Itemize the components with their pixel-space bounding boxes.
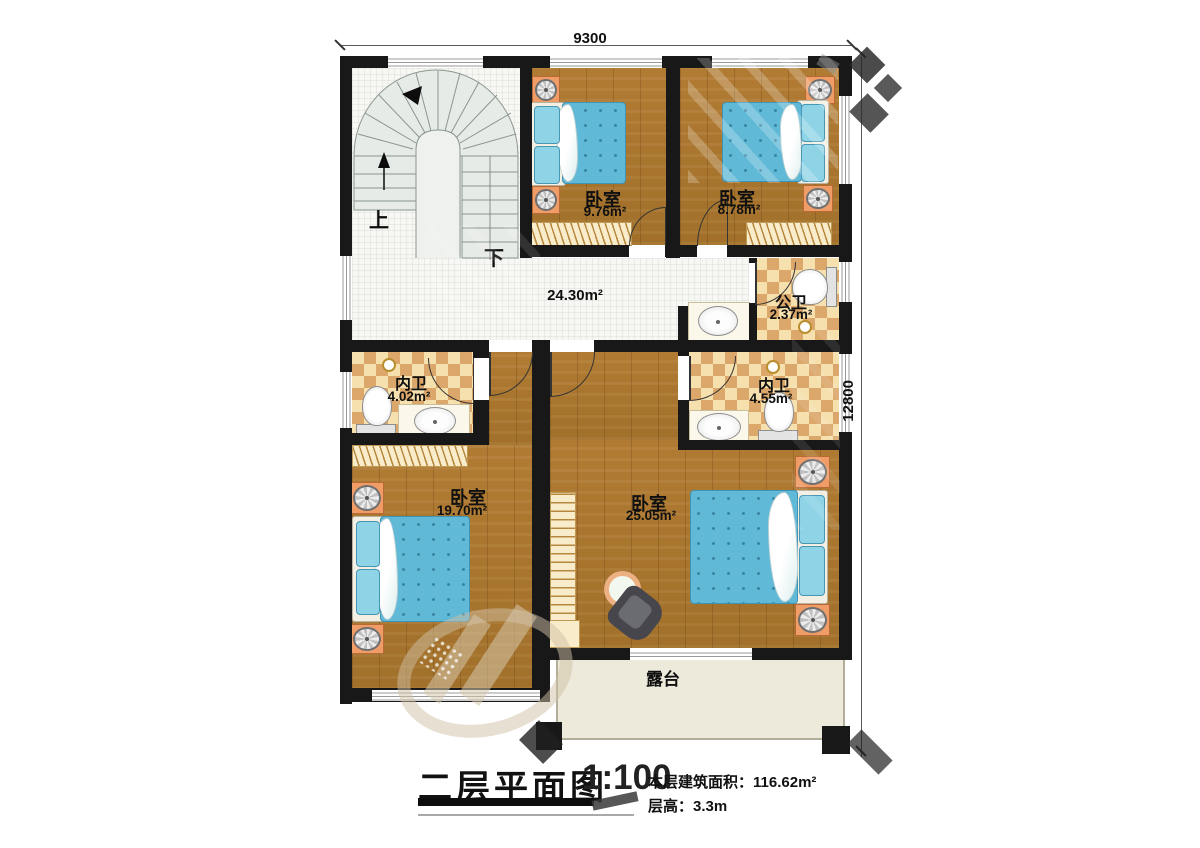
dimension-top-label: 9300 bbox=[573, 30, 606, 47]
floor-height-value: 3.3m bbox=[693, 798, 727, 815]
wall bbox=[352, 340, 489, 352]
terrace-column bbox=[822, 726, 850, 754]
floor-height-info: 层高：3.3m bbox=[648, 795, 727, 816]
ceiling-light-icon bbox=[382, 358, 396, 372]
wall bbox=[727, 245, 839, 257]
nightstand bbox=[795, 604, 830, 636]
window bbox=[340, 372, 352, 428]
lamp-icon bbox=[798, 607, 827, 633]
terrace-name: 露台 bbox=[646, 665, 680, 690]
floor-area-info: 本层建筑面积：116.62m² bbox=[648, 771, 816, 792]
wall bbox=[520, 245, 629, 257]
bed-pillow bbox=[801, 104, 825, 142]
stairs-down-label: 下 bbox=[484, 242, 504, 271]
bed-pillow bbox=[799, 546, 825, 596]
wardrobe bbox=[550, 492, 576, 622]
window bbox=[839, 96, 852, 184]
window bbox=[712, 56, 808, 68]
window bbox=[388, 56, 483, 68]
wall bbox=[520, 68, 532, 258]
watermark-block bbox=[847, 729, 892, 774]
wall bbox=[678, 400, 689, 440]
window bbox=[372, 690, 540, 701]
terrace-door-threshold bbox=[630, 650, 752, 658]
ensuite-right-area: 4.55m² bbox=[750, 391, 793, 406]
watermark-block bbox=[849, 93, 889, 133]
wall bbox=[340, 433, 489, 445]
bed-pillow bbox=[356, 521, 380, 567]
wall bbox=[666, 68, 680, 258]
bedroom-tr-area: 8.78m² bbox=[718, 202, 761, 217]
ensuite-left-area: 4.02m² bbox=[388, 389, 431, 404]
nightstand bbox=[795, 456, 830, 488]
wall bbox=[665, 245, 697, 257]
dimension-line-right bbox=[861, 57, 862, 757]
wardrobe bbox=[746, 222, 832, 246]
cabinet bbox=[548, 620, 580, 648]
floor-height-label: 层高： bbox=[648, 798, 693, 815]
wardrobe bbox=[530, 222, 632, 246]
lamp-icon bbox=[808, 79, 832, 101]
bedroom-br-area: 25.05m² bbox=[626, 508, 676, 523]
bed-pillow bbox=[801, 144, 825, 182]
bedroom-bl-area: 19.70m² bbox=[437, 503, 487, 518]
sink bbox=[698, 306, 738, 336]
wall bbox=[678, 342, 689, 356]
lamp-icon bbox=[535, 189, 557, 211]
ceiling-light-icon bbox=[798, 320, 812, 334]
bed-pillow bbox=[534, 106, 560, 144]
window bbox=[340, 256, 352, 320]
wall bbox=[678, 440, 839, 450]
wardrobe bbox=[352, 445, 468, 467]
hall-area: 24.30m² bbox=[547, 287, 603, 304]
bed-pillow bbox=[799, 495, 825, 544]
dimension-right-label: 12800 bbox=[840, 380, 857, 422]
bed-pillow bbox=[534, 146, 560, 184]
nightstand bbox=[350, 482, 384, 514]
terrace-floor bbox=[556, 660, 845, 740]
lamp-icon bbox=[353, 485, 381, 511]
public-bath-area: 2.37m² bbox=[770, 307, 813, 322]
bed-pillow bbox=[356, 569, 380, 615]
sink bbox=[414, 407, 456, 435]
title-underline bbox=[418, 798, 594, 806]
window bbox=[839, 262, 852, 302]
window bbox=[550, 56, 662, 68]
wall bbox=[548, 648, 630, 660]
lamp-icon bbox=[806, 188, 830, 209]
lamp-icon bbox=[798, 459, 827, 485]
wall bbox=[594, 340, 839, 352]
title-underline-thin bbox=[418, 814, 634, 816]
chair-seat bbox=[616, 593, 654, 631]
nightstand bbox=[532, 76, 560, 104]
floor-plan-page: 上 下 bbox=[0, 0, 1200, 848]
watermark-block bbox=[849, 47, 886, 84]
wall bbox=[752, 648, 839, 660]
nightstand bbox=[803, 185, 833, 212]
floor-area-label: 本层建筑面积： bbox=[648, 774, 753, 791]
wall bbox=[473, 340, 489, 358]
wall bbox=[678, 306, 688, 342]
lamp-icon bbox=[535, 79, 557, 101]
watermark-block bbox=[874, 74, 902, 102]
terrace-column bbox=[536, 722, 562, 750]
sink bbox=[697, 413, 741, 441]
stairs-up-label: 上 bbox=[369, 204, 389, 233]
bedroom-tl-area: 9.76m² bbox=[584, 204, 627, 219]
lamp-icon bbox=[353, 627, 381, 651]
floor-area-value: 116.62m² bbox=[753, 774, 816, 791]
nightstand bbox=[350, 624, 384, 654]
nightstand bbox=[532, 186, 560, 214]
wall bbox=[749, 303, 757, 340]
